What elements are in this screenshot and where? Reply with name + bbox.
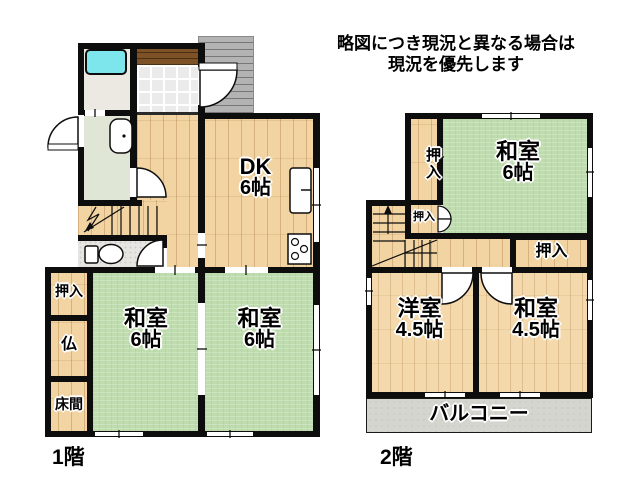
butsuma-label: 仏 xyxy=(45,337,93,354)
back-door-panel xyxy=(48,144,78,150)
washitsu-right-name: 和室 xyxy=(199,307,320,330)
sink-drain xyxy=(122,134,125,137)
washroom-door-swing xyxy=(137,168,166,197)
entrance-door-panel xyxy=(199,63,237,70)
washitsu45-name: 和室 xyxy=(479,297,593,320)
oshiire-label-1f: 押入 xyxy=(45,284,93,299)
washitsu45-size: 4.5帖 xyxy=(479,320,593,341)
youshitsu-label: 洋室 4.5帖 xyxy=(366,297,473,342)
tokonoma-label: 床間 xyxy=(45,397,93,412)
dk-name: DK xyxy=(198,155,313,178)
oshiire-right-label: 押入 xyxy=(516,244,587,261)
disclaimer: 略図につき現況と異なる場合は 現況を優先します xyxy=(300,33,612,76)
washitsu-right-label: 和室 6帖 xyxy=(199,307,320,352)
washitsu-left-label: 和室 6帖 xyxy=(93,307,199,352)
entrance-door-swing xyxy=(200,70,237,107)
back-door-swing xyxy=(48,117,78,147)
washitsu6-name: 和室 xyxy=(443,140,593,163)
youshitsu-name: 洋室 xyxy=(366,297,473,320)
disclaimer-line1: 略図につき現況と異なる場合は xyxy=(300,33,612,54)
washitsu-left-size: 6帖 xyxy=(93,330,199,351)
bathtub xyxy=(86,50,126,74)
oshiire-upper-label: 押入 xyxy=(408,128,440,200)
disclaimer-line2: 現況を優先します xyxy=(300,54,612,75)
washroom-sink xyxy=(110,119,132,153)
washitsu-right-size: 6帖 xyxy=(199,330,320,351)
oshiire-mid-label: 押入 xyxy=(405,212,443,224)
balcony-label: バルコニー xyxy=(366,404,592,425)
washitsu-left-name: 和室 xyxy=(93,307,199,330)
washitsu45-label: 和室 4.5帖 xyxy=(479,297,593,342)
toilet-door-swing xyxy=(137,240,163,266)
toilet-tank xyxy=(85,246,98,263)
dk-label: DK 6帖 xyxy=(198,155,313,200)
floor1-label: 1階 xyxy=(52,441,85,471)
floor2-label: 2階 xyxy=(380,441,413,471)
youshitsu-size: 4.5帖 xyxy=(366,320,473,341)
dk-size: 6帖 xyxy=(198,178,313,199)
stairs-1f-treads xyxy=(84,206,157,235)
toilet-bowl xyxy=(99,245,123,264)
floorplan-canvas: 略図につき現況と異なる場合は 現況を優先します DK 6帖 xyxy=(0,0,640,480)
stairs-2f-up-arrow xyxy=(384,205,392,214)
washitsu6-size: 6帖 xyxy=(443,163,593,184)
washitsu6-label: 和室 6帖 xyxy=(443,140,593,185)
